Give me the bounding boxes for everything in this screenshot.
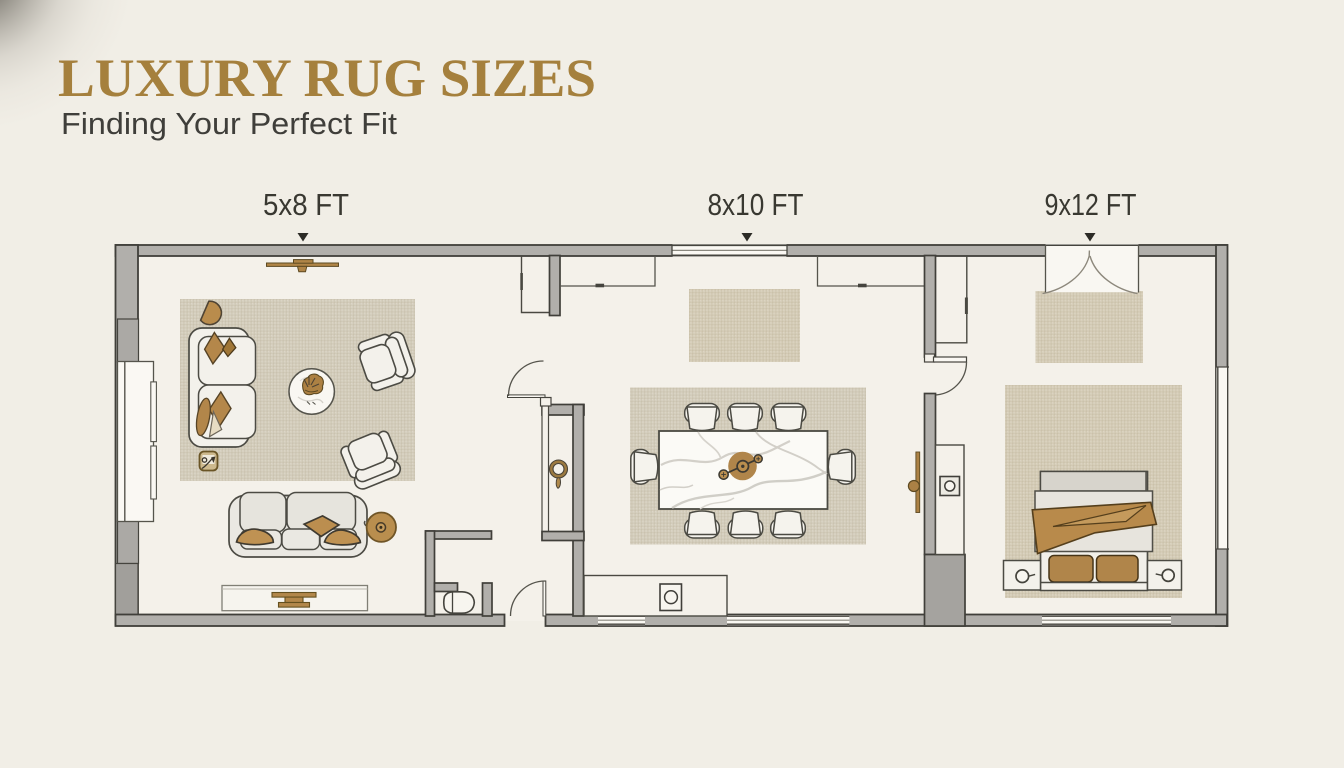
svg-text:Finding Your Perfect Fit: Finding Your Perfect Fit (61, 106, 397, 141)
svg-text:LUXURY RUG SIZES: LUXURY RUG SIZES (58, 48, 596, 108)
svg-text:9x12 FT: 9x12 FT (1045, 187, 1137, 222)
svg-text:5x8 FT: 5x8 FT (263, 187, 349, 222)
svg-text:8x10 FT: 8x10 FT (708, 187, 804, 222)
